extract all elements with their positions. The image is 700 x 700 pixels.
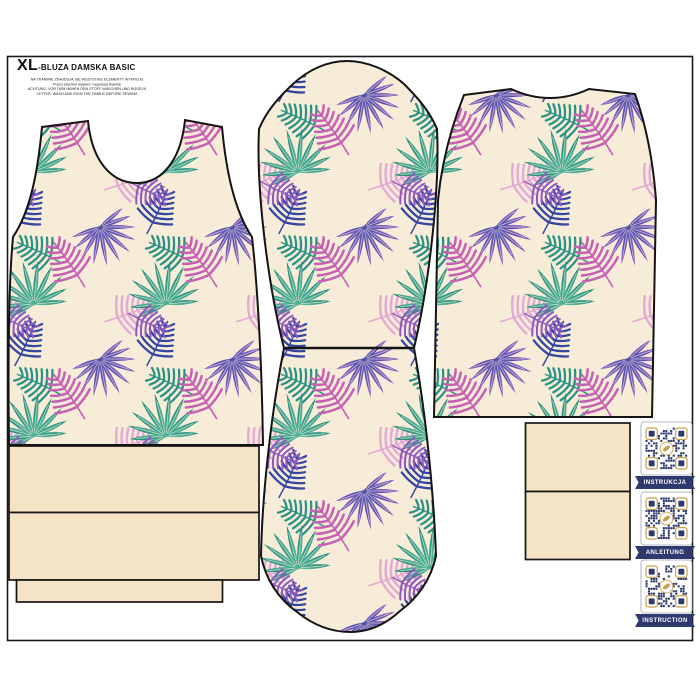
blank-strip-4 (526, 423, 631, 492)
qr-code-3 (641, 560, 692, 613)
title-block: XL-BLUZA DAMSKA BASIC NA TKANINIE ZNAJDU… (17, 57, 167, 116)
qr-codes (641, 422, 692, 613)
blank-strip-5 (526, 492, 631, 560)
note-line: LETTER: WASH AND IRON THE FABRIC BEFORE … (17, 91, 157, 96)
blank-strip-2 (9, 513, 259, 581)
back-piece (434, 89, 656, 417)
front-piece (8, 120, 263, 445)
qr-label-anleitung: ANLEITUNG (635, 546, 695, 559)
qr-label-instruction: INSTRUCTION (635, 614, 695, 627)
blank-strip-1 (9, 446, 259, 513)
fine-print: NA TKANINIE ZNAJDUJĄ SIĘ WSZYSTKIE ELEME… (17, 77, 157, 96)
page-title: -BLUZA DAMSKA BASIC (38, 63, 135, 72)
qr-code-2 (641, 492, 692, 545)
size-label: XL (17, 57, 38, 74)
qr-label-instrukcja: INSTRUKCJA (635, 476, 695, 489)
blank-strip-3 (17, 580, 223, 602)
sleeve-piece (259, 61, 438, 632)
qr-code-1 (641, 422, 692, 475)
pattern-panel: XL-BLUZA DAMSKA BASIC NA TKANINIE ZNAJDU… (0, 0, 700, 700)
